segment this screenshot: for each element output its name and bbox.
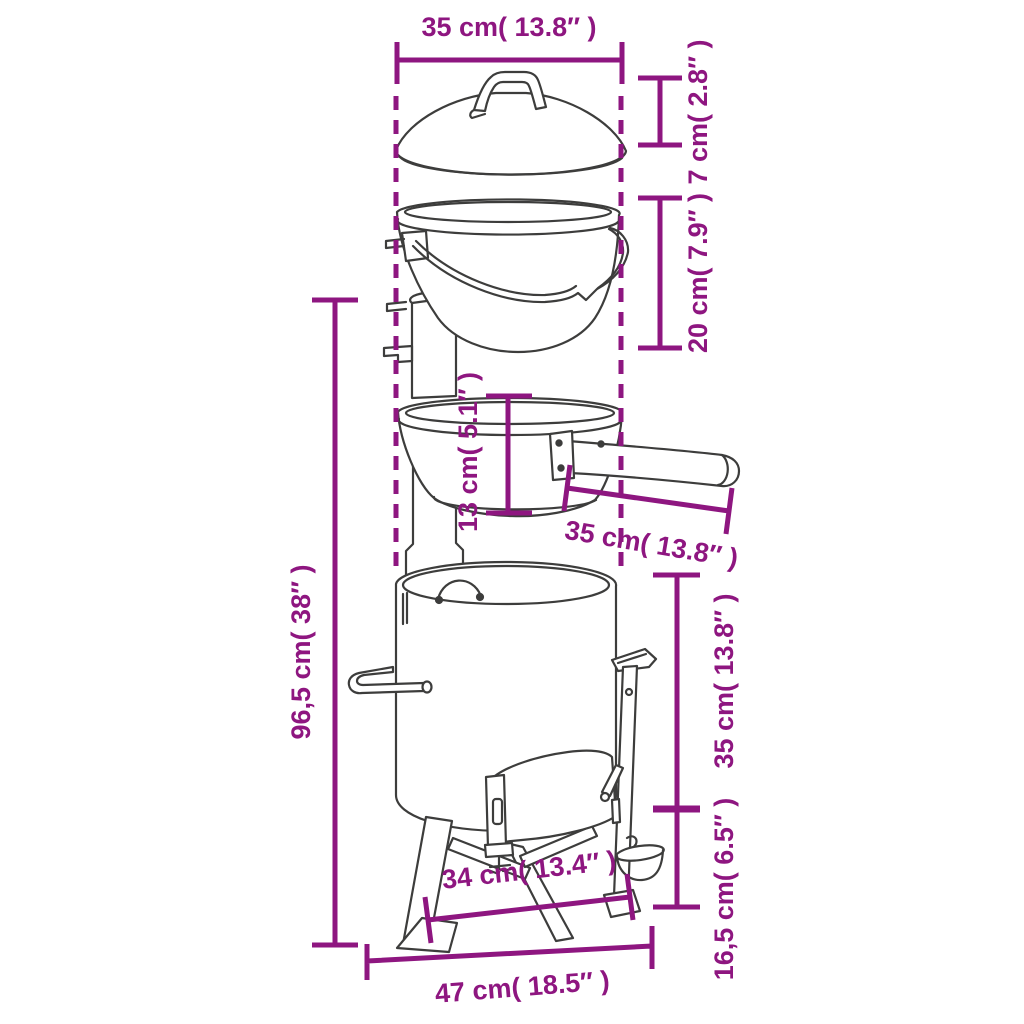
stove-dimensions-figure: 35 cm( 13.8″ ) 7 cm( 2.8″ ) 20 cm( 7.9″ … [0, 0, 1024, 1024]
dimension-line [653, 575, 700, 808]
dim-pot-height: 20 cm( 7.9″ ) [638, 193, 713, 353]
pan [398, 398, 739, 516]
dim-body-height-label: 35 cm( 13.8″ ) [709, 593, 739, 768]
dim-pan-height-label: 13 cm( 5.1″ ) [453, 372, 483, 532]
bracket-screw-top [556, 440, 561, 445]
grate-handle-pin-right [477, 594, 483, 600]
door-latch-catch [612, 799, 620, 823]
dim-overall-width-label: 47 cm( 18.5″ ) [434, 965, 611, 1009]
dim-lid-height: 7 cm( 2.8″ ) [638, 40, 713, 185]
pipe-hook-top [387, 302, 406, 311]
side-handle-ferrule [423, 682, 432, 693]
bracket-screw-side [598, 441, 603, 446]
door-latch-pivot [601, 793, 609, 801]
lid [396, 72, 626, 175]
dim-leg-height-label: 16,5 cm( 6.5″ ) [709, 798, 739, 981]
dimension-line [312, 300, 358, 945]
dimensions-diagram: 35 cm( 13.8″ ) 7 cm( 2.8″ ) 20 cm( 7.9″ … [0, 0, 1024, 1024]
dim-body-height: 35 cm( 13.8″ ) [653, 575, 739, 808]
dim-pot-height-label: 20 cm( 7.9″ ) [683, 193, 713, 353]
lid-dome [396, 93, 626, 175]
door-handle [493, 799, 502, 824]
dim-total-height-label: 96,5 cm( 38″ ) [286, 564, 316, 739]
dim-total-height: 96,5 cm( 38″ ) [286, 300, 358, 945]
dimension-line [638, 78, 682, 145]
dimension-line [638, 198, 682, 348]
dim-leg-height: 16,5 cm( 6.5″ ) [653, 798, 739, 981]
dimension-line [653, 810, 700, 907]
grate-handle-pin-left [436, 597, 442, 603]
dim-lid-width-label: 35 cm( 13.8″ ) [421, 12, 596, 42]
dim-pan-width-label: 35 cm( 13.8″ ) [563, 515, 741, 573]
bracket-screw-bottom [558, 465, 563, 470]
door-bottom-clamp [485, 843, 513, 857]
dim-lid-height-label: 7 cm( 2.8″ ) [683, 40, 713, 185]
